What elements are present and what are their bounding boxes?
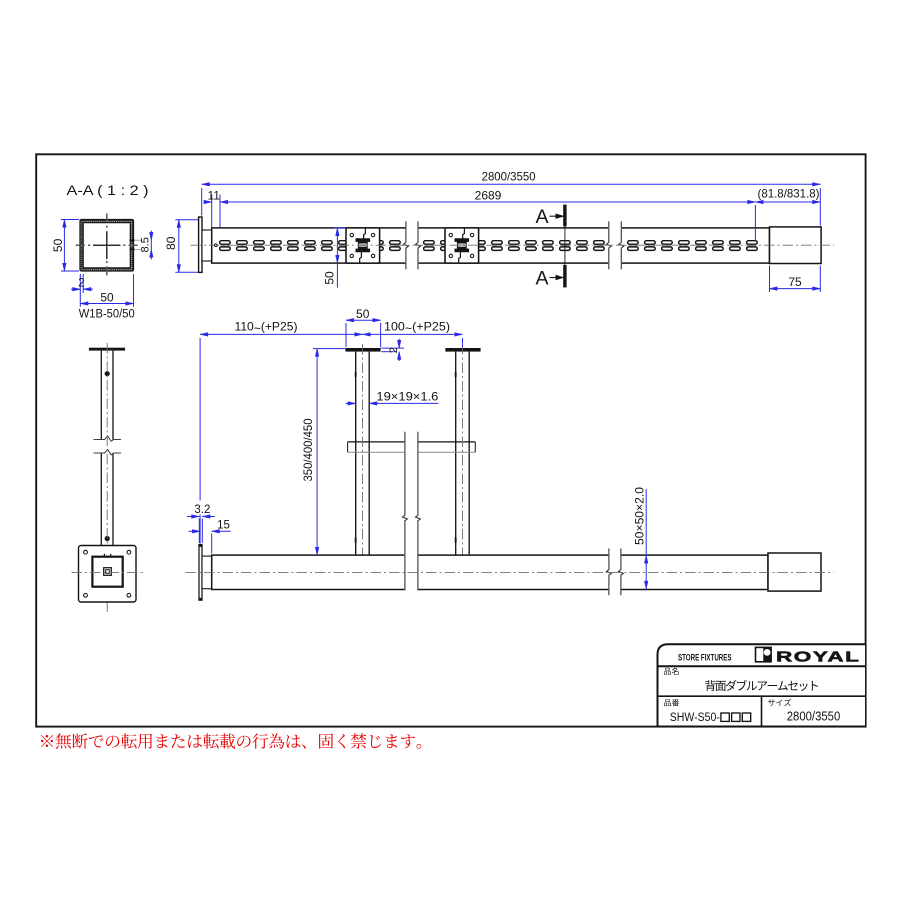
svg-text:SHW-S50-: SHW-S50-: [670, 710, 720, 724]
svg-text:2800/3550: 2800/3550: [482, 169, 536, 183]
svg-text:A: A: [535, 267, 548, 289]
svg-text:50: 50: [356, 307, 370, 321]
svg-text:2: 2: [388, 347, 400, 353]
svg-text:2: 2: [78, 278, 84, 290]
svg-text:A-A ( 1 : 2 ): A-A ( 1 : 2 ): [67, 183, 149, 198]
svg-text:110~(+P25): 110~(+P25): [235, 320, 298, 336]
svg-text:50: 50: [100, 290, 114, 304]
svg-text:A: A: [535, 206, 548, 228]
svg-text:75: 75: [788, 275, 802, 289]
svg-text:50×50×2.0: 50×50×2.0: [633, 487, 647, 545]
svg-text:2800/3550: 2800/3550: [787, 710, 841, 724]
svg-text:(81.8/831.8): (81.8/831.8): [758, 187, 820, 201]
svg-text:2689: 2689: [475, 188, 502, 202]
svg-text:15: 15: [217, 519, 230, 531]
svg-text:50: 50: [51, 238, 65, 252]
svg-text:80: 80: [164, 236, 178, 250]
svg-text:W1B-50/50: W1B-50/50: [79, 309, 135, 321]
svg-text:3.2: 3.2: [194, 504, 210, 516]
svg-text:11: 11: [207, 189, 220, 203]
svg-text:STORE FIXTURES: STORE FIXTURES: [678, 653, 732, 664]
svg-text:8.5: 8.5: [139, 237, 151, 252]
svg-text:100~(+P25): 100~(+P25): [384, 320, 450, 336]
svg-text:19×19×1.6: 19×19×1.6: [376, 389, 438, 403]
svg-text:50: 50: [322, 271, 336, 285]
svg-text:350/400/450: 350/400/450: [301, 418, 315, 481]
svg-text:ROYAL: ROYAL: [776, 650, 861, 666]
